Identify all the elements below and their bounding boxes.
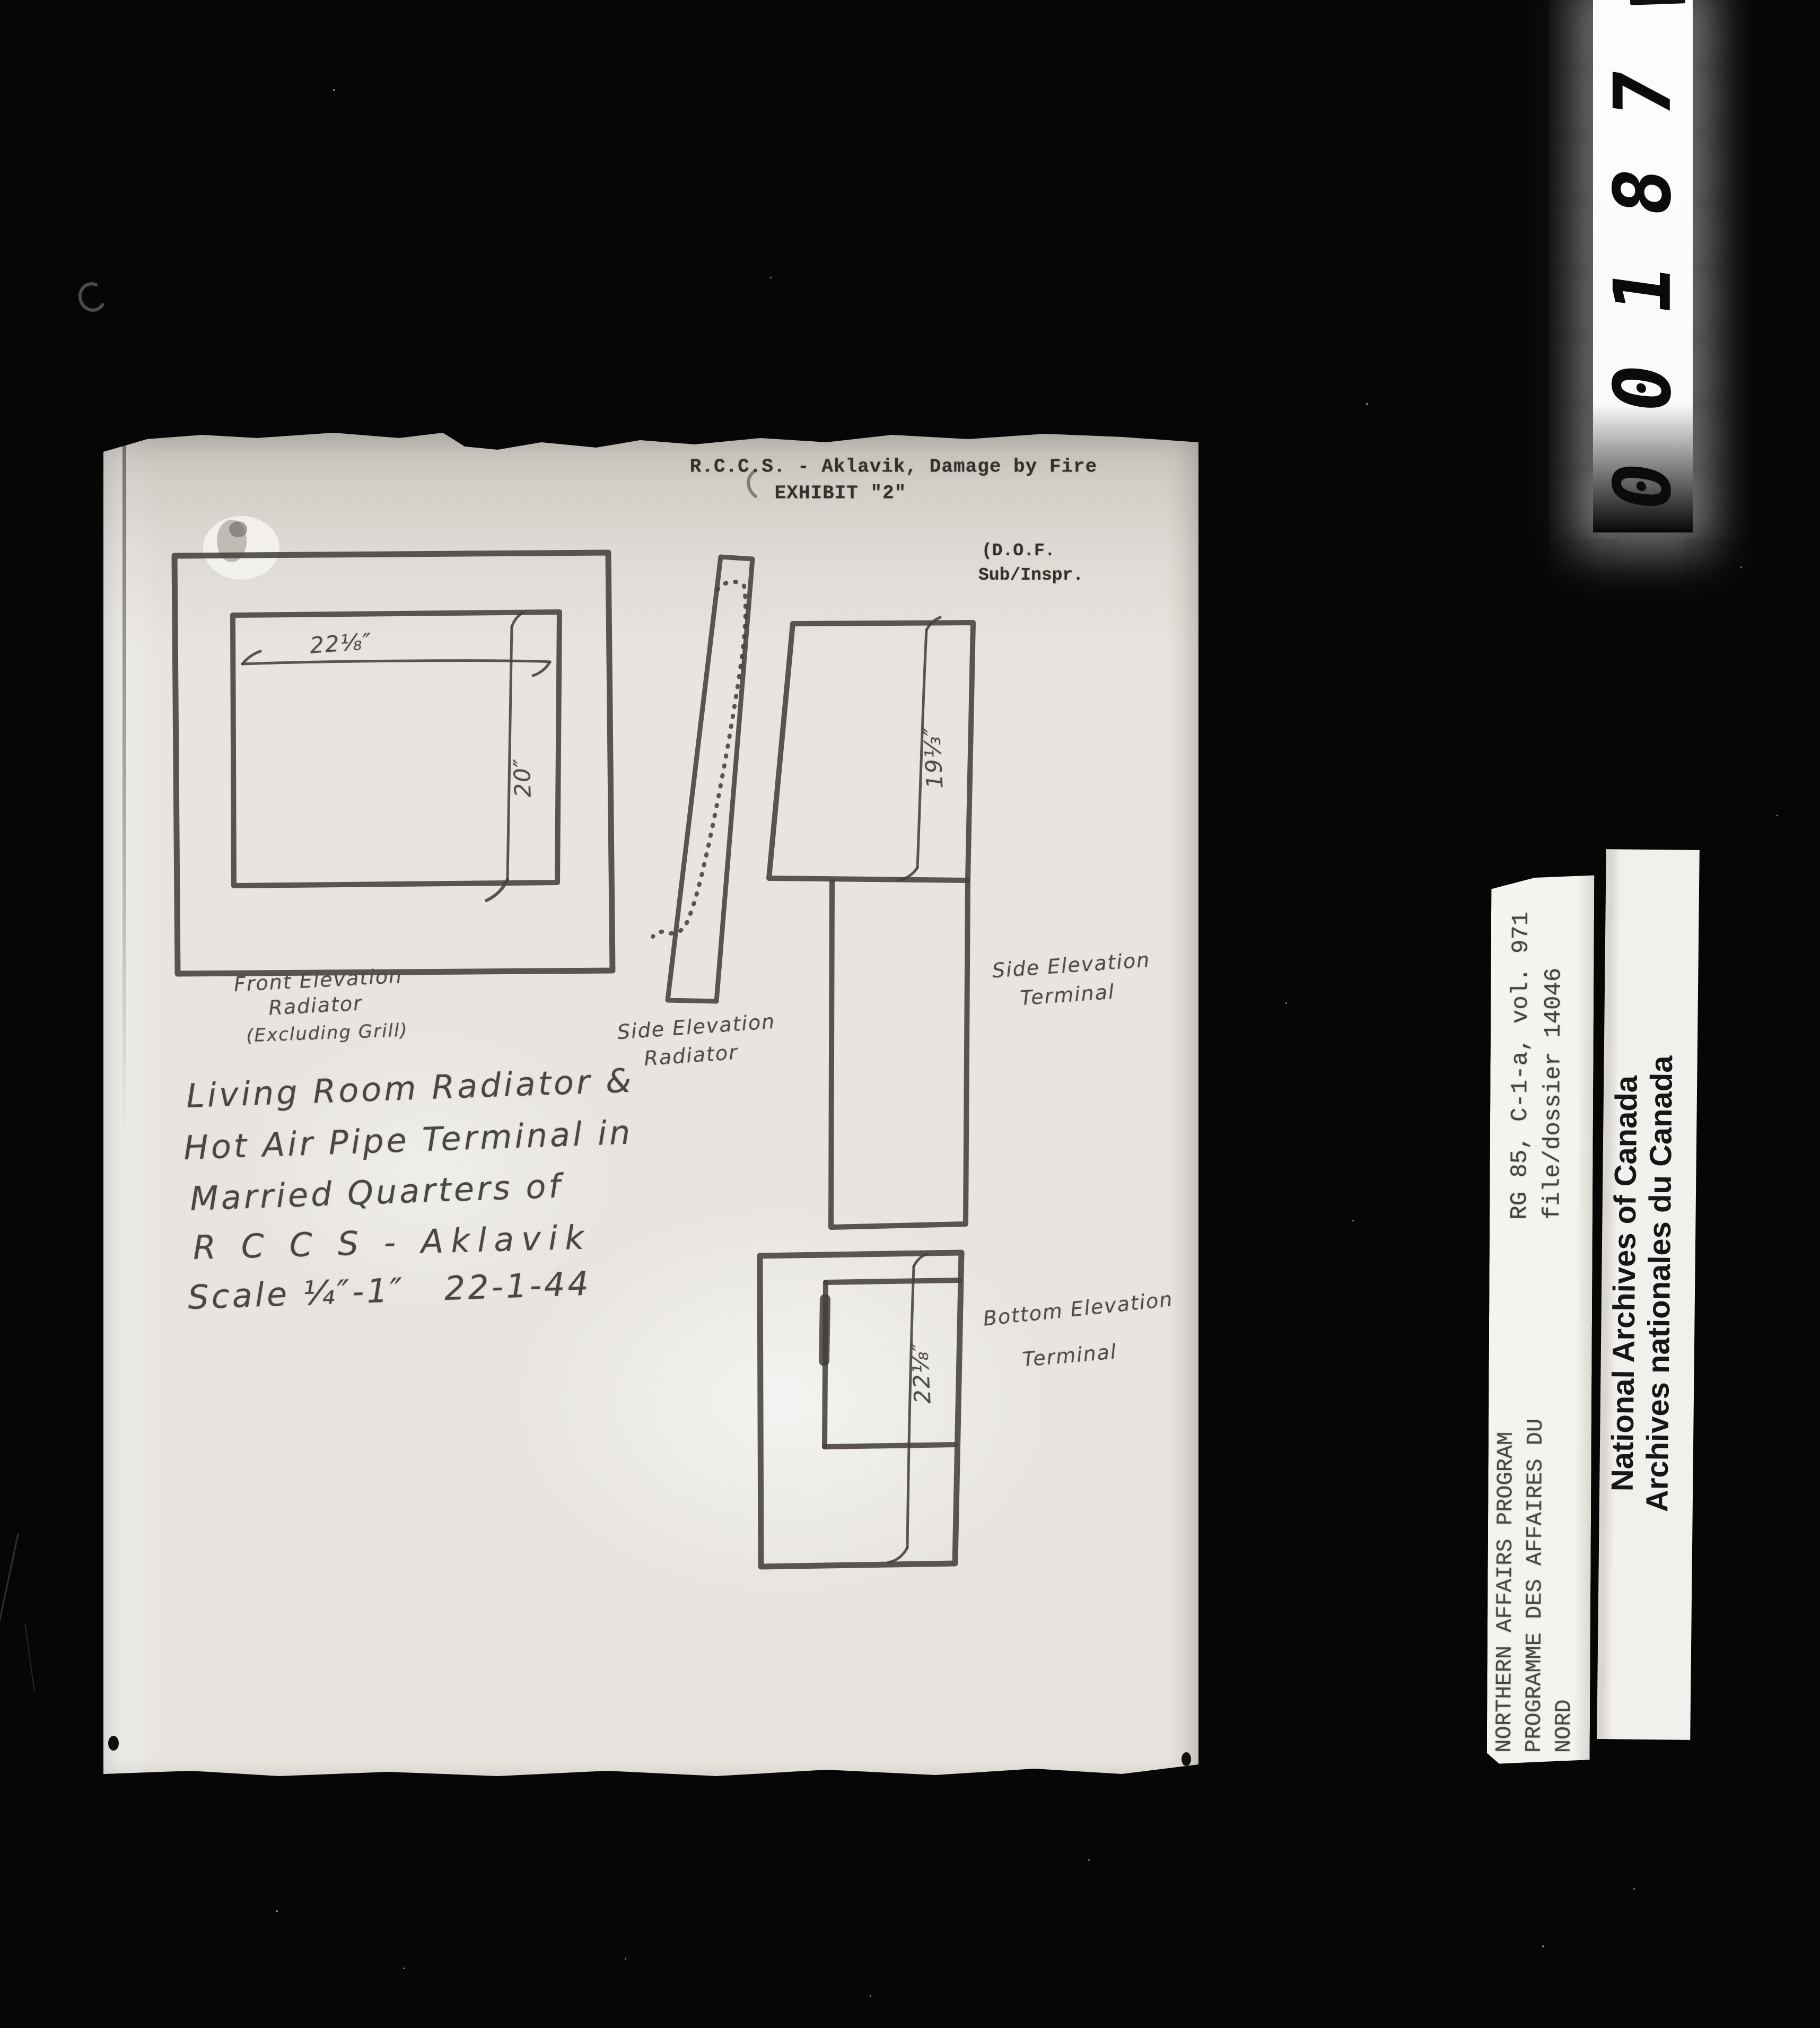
dust-speck	[1777, 815, 1778, 816]
archive-reference-line: file/dossier 14046	[1536, 891, 1571, 1220]
side-radiator-outline	[668, 557, 752, 1001]
signature-rank: Sub/Inspr.	[978, 565, 1083, 585]
bottom-length-dimension: 22⅛″	[906, 1341, 935, 1404]
dust-speck	[1088, 1859, 1090, 1861]
front-elevation-label: Radiator	[268, 991, 363, 1019]
dust-speck	[276, 1910, 278, 1912]
archive-reference-strip: RG 85, C-1-a, vol. 971 file/dossier 1404…	[1487, 875, 1595, 1764]
national-archives-strip: National Archives of Canada Archives nat…	[1597, 849, 1700, 1740]
film-frame-counter-strip: 00187	[1593, 0, 1693, 532]
bottom-terminal-outer-rect	[760, 1253, 961, 1567]
front-width-dimension-line	[242, 661, 550, 664]
front-width-dimension: 22⅛″	[309, 628, 373, 658]
exhibit-title: R.C.C.S. - Aklavik, Damage by Fire	[690, 456, 1098, 478]
dust-speck	[333, 89, 335, 91]
side-terminal-pipe-outline	[831, 880, 968, 1227]
dust-speck	[1633, 1888, 1635, 1890]
side-radiator-dotted-pipe	[653, 582, 746, 937]
dimension-arrow	[242, 651, 260, 664]
punch-hole	[1182, 1752, 1191, 1766]
smudge-mark	[229, 521, 247, 537]
pencil-c-mark	[75, 278, 110, 315]
dust-speck	[770, 277, 772, 278]
punch-hole	[108, 1736, 119, 1751]
institution-name-block: National Archives of Canada Archives nat…	[1605, 1039, 1682, 1528]
microfilm-scan: R.C.C.S. - Aklavik, Damage by Fire EXHIB…	[0, 0, 1820, 2028]
partial-digit-mark	[1630, 0, 1685, 5]
program-label-block: NORTHERN AFFAIRS PROGRAM PROGRAMME DES A…	[1490, 1392, 1582, 1753]
program-label-line: NORTHERN AFFAIRS PROGRAM	[1490, 1392, 1521, 1753]
bottom-terminal-inner-bottom	[825, 1445, 955, 1447]
program-label-line: NORD	[1549, 1392, 1581, 1753]
front-height-dimension-line	[507, 627, 512, 879]
archive-reference-block: RG 85, C-1-a, vol. 971 file/dossier 1404…	[1503, 891, 1564, 1220]
heavy-pencil-blob	[824, 1299, 825, 1361]
dust-speck	[403, 1968, 405, 1969]
dust-speck	[1352, 1220, 1354, 1221]
dimension-arrow	[888, 1548, 907, 1562]
program-label-line: PROGRAMME DES AFFAIRES DU	[1519, 1392, 1551, 1753]
film-scratch	[24, 1623, 35, 1691]
dust-speck	[1366, 403, 1368, 405]
dust-speck	[1285, 1002, 1287, 1004]
bottom-length-dimension-line	[907, 1266, 914, 1548]
dimension-arrow	[533, 662, 550, 676]
dust-speck	[1740, 566, 1742, 568]
institution-name-line: National Archives of Canada	[1605, 1039, 1645, 1528]
bottom-terminal-inner-top	[826, 1280, 959, 1282]
signature-initials: (D.O.F.	[982, 541, 1055, 561]
dust-speck	[625, 1958, 626, 1960]
film-scratch	[0, 1534, 19, 1622]
dust-speck	[1542, 1945, 1544, 1947]
frame-counter-digits: 00187	[1597, 13, 1688, 517]
institution-name-line: Archives nationales du Canada	[1640, 1039, 1680, 1528]
front-height-dimension: 20″	[509, 757, 536, 798]
dust-speck	[870, 1995, 871, 1997]
document-page: R.C.C.S. - Aklavik, Damage by Fire EXHIB…	[103, 429, 1198, 1778]
terminal-depth-dimension: 19⅓″	[918, 725, 948, 789]
archive-reference-line: RG 85, C-1-a, vol. 971	[1503, 891, 1538, 1220]
exhibit-number: EXHIBIT "2"	[775, 483, 907, 504]
